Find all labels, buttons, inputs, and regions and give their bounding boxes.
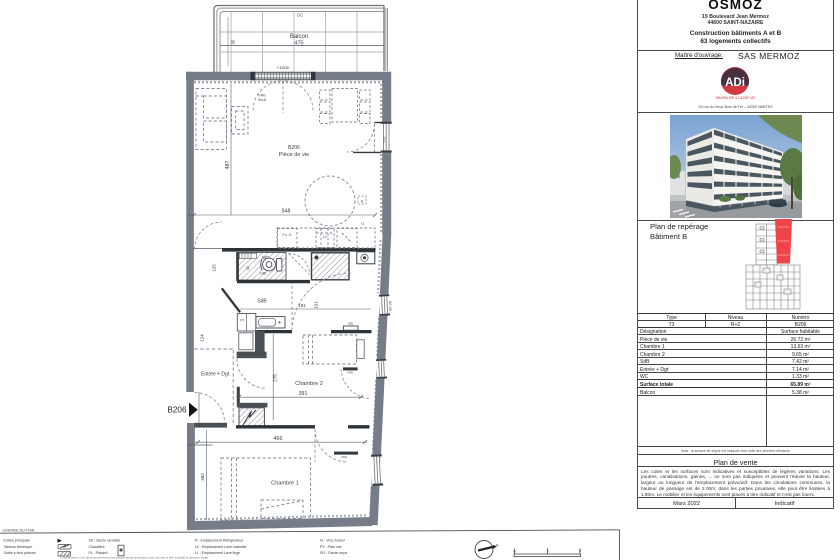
svg-text:191: 191 [298, 303, 306, 308]
svg-text:Pl: Pl [240, 319, 243, 323]
svg-text:Chambre 2: Chambre 2 [295, 381, 323, 387]
svg-text:Sortie à faux plafond: Sortie à faux plafond [4, 551, 36, 555]
svg-text:LL : Emplacement Lave linge: LL : Emplacement Lave linge [195, 551, 240, 555]
svg-text:PV : Pare vue: PV : Pare vue [320, 545, 342, 549]
svg-text:SS : Sèche serviette: SS : Sèche serviette [89, 539, 121, 543]
svg-text:SG : Garde corps: SG : Garde corps [320, 551, 347, 555]
svg-text:SS: SS [348, 322, 353, 326]
svg-text:SdB: SdB [257, 299, 267, 305]
svg-text:391: 391 [299, 391, 308, 397]
svg-text:548: 548 [282, 209, 291, 215]
svg-text:B206: B206 [167, 406, 187, 415]
svg-text:LV: LV [323, 235, 328, 239]
svg-text:32: 32 [246, 266, 250, 270]
svg-text:Chaudière: Chaudière [89, 545, 105, 549]
svg-text:Balcon: Balcon [290, 34, 308, 40]
svg-text:487: 487 [225, 161, 231, 170]
svg-text:Pièce de vie: Pièce de vie [279, 152, 309, 158]
svg-text:LEGENDE DU PLAN: LEGENDE DU PLAN [3, 529, 35, 533]
svg-text:2: 2 [579, 548, 582, 553]
svg-text:VRE: VRE [383, 136, 387, 142]
svg-text:B206: B206 [288, 145, 300, 151]
svg-text:GC: GC [297, 13, 303, 18]
svg-text:AS VR: AS VR [389, 300, 393, 311]
svg-text:124: 124 [200, 334, 205, 342]
svg-text:0: 0 [513, 549, 516, 554]
svg-text:382: 382 [200, 473, 205, 481]
svg-text:475: 475 [294, 41, 303, 47]
svg-text:Fo .O: Fo .O [283, 233, 292, 237]
svg-text:Chambre 1: Chambre 1 [271, 481, 299, 487]
svg-text:ADi: ADi [725, 77, 745, 89]
svg-text:Entrée principale: Entrée principale [4, 539, 30, 543]
svg-text:PL : Placard: PL : Placard [89, 551, 108, 555]
svg-text:N: N [496, 544, 499, 548]
svg-text:LV : Emplacement Lave vaissell: LV : Emplacement Lave vaisselle [195, 545, 246, 549]
svg-text:L'implantation et le dimension: L'implantation et le dimensionnement des… [60, 556, 208, 560]
svg-text:Seuil: Seuil [258, 98, 267, 102]
svg-text:VRE: VRE [258, 94, 266, 98]
svg-text:140: 140 [260, 272, 266, 276]
svg-text:Tableau électrique: Tableau électrique [4, 545, 32, 549]
svg-text:125: 125 [212, 264, 217, 272]
svg-text:466: 466 [274, 436, 283, 442]
svg-text:1: 1 [546, 548, 549, 553]
svg-text:B: B [361, 200, 364, 204]
svg-text:R : Emplacement Réfrigérateur: R : Emplacement Réfrigérateur [195, 539, 244, 543]
svg-text:+13cm: +13cm [277, 65, 290, 70]
svg-text:VRE: VRE [341, 455, 347, 459]
svg-text:275: 275 [273, 374, 278, 382]
svg-text:90: 90 [231, 39, 236, 44]
svg-text:LL: LL [361, 222, 365, 226]
svg-text:Entrée + Dgt: Entrée + Dgt [201, 372, 230, 378]
svg-text:VRE: VRE [347, 371, 353, 375]
svg-text:VI : Vmc mutuel: VI : Vmc mutuel [320, 539, 345, 543]
svg-text:131: 131 [314, 301, 319, 309]
